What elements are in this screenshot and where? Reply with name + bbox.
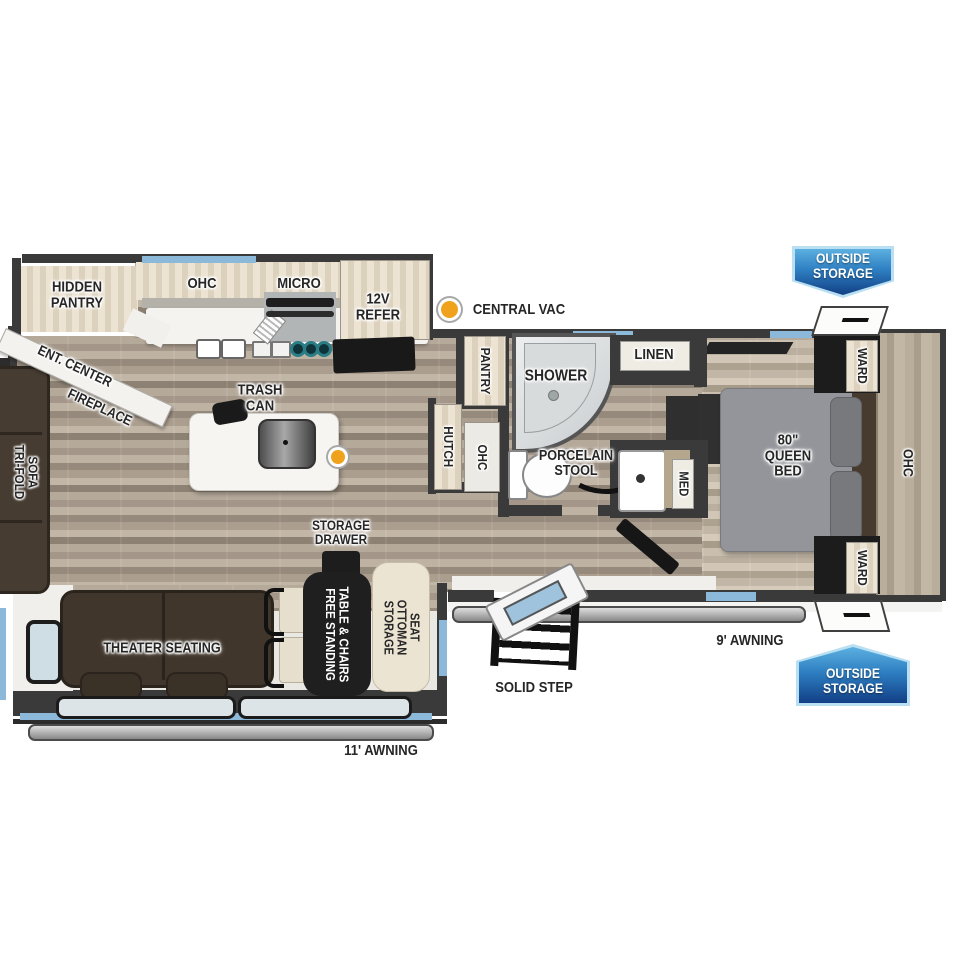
theater-left-window <box>26 620 62 684</box>
sink-bowl-1 <box>196 339 221 359</box>
bed-pillow-2 <box>830 471 862 541</box>
table-chairs-label: FREE STANDINGTABLE & CHAIRS <box>323 586 350 682</box>
hutch-cabinet: HUTCH <box>434 404 462 490</box>
sofa-seam-2 <box>0 520 42 523</box>
theater-seating-label: THEATER SEATING <box>103 641 220 656</box>
trash-can-label: TRASHCAN <box>238 382 283 413</box>
porcelain-stool-label: PORCELAINSTOOL <box>539 449 613 479</box>
queen-bed-label: 80"QUEENBED <box>765 433 811 480</box>
island-central-vac-dot <box>331 450 345 464</box>
rv-floorplan: PANTRY HUTCH OHC MED WARD WARD <box>0 0 960 960</box>
bedroom-front-window <box>703 342 794 354</box>
ward-bottom-plaque: WARD <box>846 542 878 594</box>
counter-drawer-1 <box>252 341 272 358</box>
ward-top-label: WARD <box>855 348 869 384</box>
theater-left-accent <box>0 608 6 700</box>
cooktop-burner-3 <box>316 341 332 357</box>
storage-ottoman-tag: STORAGEOTTOMANSEAT <box>372 562 430 692</box>
refer-label: 12VREFER <box>356 291 400 322</box>
kitchen-ohc-label: OHC <box>187 276 216 292</box>
table-chairs-tag: FREE STANDINGTABLE & CHAIRS <box>303 572 371 696</box>
awning-11-label: 11' AWNING <box>344 743 418 759</box>
theater-bottom-window-2 <box>238 696 412 719</box>
theater-right-wall-window <box>439 620 447 676</box>
theater-bottom-window-1 <box>56 696 236 719</box>
ward-bottom-label: WARD <box>855 550 869 586</box>
central-vac-label: CENTRAL VAC <box>473 302 565 318</box>
hatch-bottom-handle <box>843 613 870 617</box>
outside-storage-hatch-top <box>811 306 889 336</box>
pantry-nook-wall <box>456 336 464 406</box>
micro-label: MICRO <box>277 276 321 292</box>
shower-label: SHOWER <box>525 369 588 386</box>
pantry-label: PANTRY <box>478 348 492 395</box>
hall-ohc-label: OHC <box>475 444 489 470</box>
kitchen-slide-window <box>142 256 256 263</box>
counter-drawer-2 <box>271 341 291 358</box>
med-plaque: MED <box>672 459 694 509</box>
med-label: MED <box>676 471 689 496</box>
pantry-cabinet: PANTRY <box>464 336 506 406</box>
bottom-wall-left-of-door <box>448 590 494 602</box>
bath-bottom-wall-a <box>498 505 562 516</box>
awning-bar-11ft <box>28 724 434 741</box>
bed-pillow-1 <box>830 397 862 467</box>
dining-chair-back-2 <box>264 638 284 688</box>
outside-storage-badge-top: OUTSIDE STORAGE <box>792 246 894 298</box>
hutch-label: HUTCH <box>441 427 455 468</box>
outside-storage-badge-bottom: OUTSIDE STORAGE <box>796 644 910 706</box>
outside-storage-hatch-bottom <box>814 600 891 632</box>
range-block <box>332 337 415 374</box>
badge-top-text: OUTSIDE STORAGE <box>797 251 889 281</box>
hall-ohc-cabinet: OHC <box>464 422 500 492</box>
top-wall-window-2 <box>770 331 812 338</box>
trash-can-dot <box>283 440 288 445</box>
tri-fold-sofa-label: TRI-FOLDSOFA <box>12 445 39 500</box>
hidden-pantry-label: HIDDENPANTRY <box>51 279 103 310</box>
sink-bowl-2 <box>221 339 246 359</box>
bedroom-ohc-label: OHC <box>901 449 916 477</box>
badge-bottom-text: OUTSIDE STORAGE <box>802 666 905 696</box>
theater-seat-divider <box>162 592 165 680</box>
microwave-strip-1 <box>266 298 334 307</box>
ward-top-plaque: WARD <box>846 340 878 392</box>
awning-9-label: 9' AWNING <box>716 633 783 649</box>
bottom-wall-window <box>706 592 756 601</box>
microwave-strip-2 <box>266 311 334 317</box>
dining-chair-back-1 <box>264 588 284 636</box>
med-faucet <box>636 474 645 483</box>
storage-drawer-label: STORAGEDRAWER <box>312 519 370 547</box>
hatch-top-handle <box>842 318 869 322</box>
central-vac-dot <box>441 301 458 318</box>
kitchen-slide-left-wall <box>12 258 21 336</box>
sofa-seam-1 <box>0 432 42 435</box>
storage-ottoman-label: STORAGEOTTOMANSEAT <box>381 599 420 654</box>
solid-step-label: SOLID STEP <box>495 680 573 696</box>
